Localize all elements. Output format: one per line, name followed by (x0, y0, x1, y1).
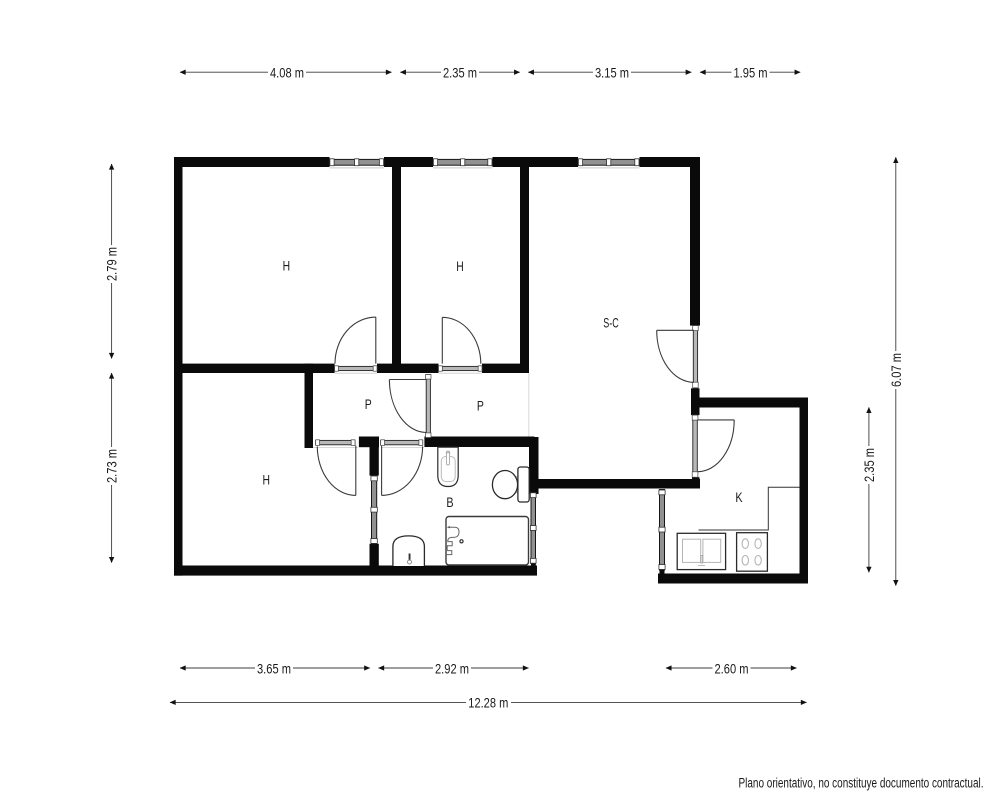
svg-text:K: K (735, 489, 743, 505)
svg-text:2.73 m: 2.73 m (104, 449, 120, 483)
svg-text:S-C: S-C (603, 315, 619, 331)
svg-text:6.07 m: 6.07 m (888, 353, 904, 387)
svg-text:4.08 m: 4.08 m (270, 64, 304, 80)
svg-text:3.15 m: 3.15 m (595, 64, 629, 80)
svg-text:2.35 m: 2.35 m (861, 448, 877, 482)
svg-text:Plano orientativo, no constitu: Plano orientativo, no constituye documen… (739, 776, 984, 791)
svg-text:1.95 m: 1.95 m (734, 64, 768, 80)
svg-text:2.35 m: 2.35 m (443, 64, 477, 80)
svg-text:12.28 m: 12.28 m (468, 695, 508, 711)
svg-text:2.79 m: 2.79 m (104, 247, 120, 281)
svg-text:2.60 m: 2.60 m (715, 660, 749, 676)
svg-text:H: H (283, 258, 291, 274)
svg-text:P: P (477, 398, 484, 414)
svg-text:P: P (365, 396, 372, 412)
svg-text:H: H (263, 472, 271, 488)
svg-text:B: B (446, 494, 453, 510)
svg-text:2.92 m: 2.92 m (435, 660, 469, 676)
svg-text:3.65 m: 3.65 m (257, 660, 291, 676)
svg-text:H: H (456, 258, 464, 274)
